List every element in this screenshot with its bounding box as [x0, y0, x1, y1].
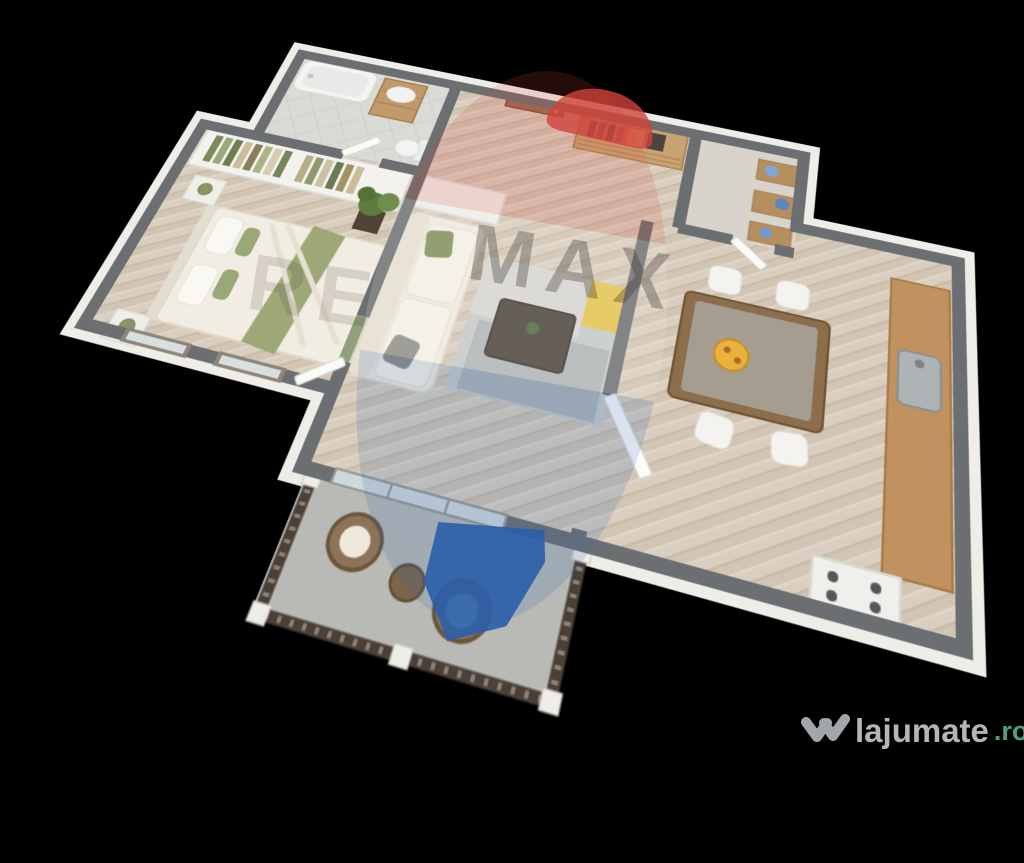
railing-post — [539, 688, 563, 716]
lajumate-logo: lajumate .ro — [800, 710, 1024, 752]
interior-wall — [577, 530, 580, 543]
logo-tld-text: .ro — [994, 716, 1024, 747]
heart-check-icon — [800, 710, 850, 752]
black-background: RE MAX lajumate .ro — [0, 0, 1024, 768]
interior-wall — [775, 249, 794, 253]
kitchen-counter — [882, 278, 953, 592]
green-pillow — [424, 230, 454, 258]
kitchen-sink — [897, 349, 941, 414]
logo-site-text: lajumate — [855, 712, 989, 750]
dining-chair — [771, 430, 808, 468]
